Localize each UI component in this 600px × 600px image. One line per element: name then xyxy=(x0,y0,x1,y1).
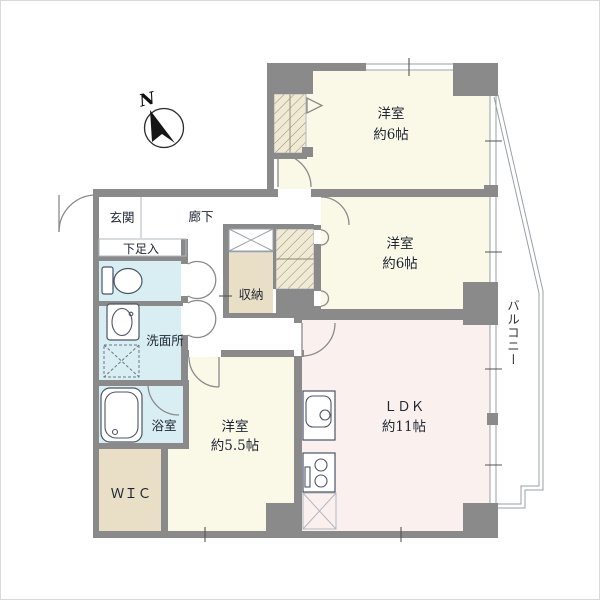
label-bedroom-top-name: 洋室 xyxy=(378,105,405,122)
vanity-sink-icon xyxy=(107,304,139,340)
label-bedroom-top-size: 約6帖 xyxy=(373,127,409,143)
compass-north-label: N xyxy=(136,88,158,112)
stove-icon xyxy=(303,453,335,492)
label-balcony: バルコニー xyxy=(504,299,522,409)
label-wic: ＷＩＣ xyxy=(111,486,152,502)
toilet-icon xyxy=(102,267,142,294)
entrance-door xyxy=(59,195,96,232)
label-ldk-size: 約11帖 xyxy=(382,419,426,435)
label-bathroom: 浴室 xyxy=(151,418,176,433)
label-storage: 収納 xyxy=(238,287,263,302)
storage-top-box-icon xyxy=(229,229,273,252)
floor-plan: N 洋室 約6帖 洋室 約6帖 ＬＤＫ 約11帖 洋室 約5.5帖 ＷＩＣ 浴室… xyxy=(0,0,600,600)
room-storage xyxy=(229,253,273,313)
label-hallway: 廊下 xyxy=(188,209,213,224)
label-bedroom-small-name: 洋室 xyxy=(222,418,249,435)
label-entrance: 玄関 xyxy=(109,210,134,225)
label-bedroom-mid-name: 洋室 xyxy=(387,235,414,252)
label-bedroom-mid-size: 約6帖 xyxy=(382,256,418,272)
label-washroom: 洗面所 xyxy=(146,333,184,348)
label-bedroom-small-size: 約5.5帖 xyxy=(211,438,259,454)
compass: N xyxy=(136,88,183,147)
toilet-door xyxy=(188,262,216,299)
washroom-door xyxy=(188,301,216,338)
label-ldk-name: ＬＤＫ xyxy=(384,399,425,415)
bathtub-icon xyxy=(101,388,142,442)
compass-needle-icon xyxy=(150,110,175,143)
kitchen-sink-icon xyxy=(303,391,335,440)
label-shoe-cabinet: 下足入 xyxy=(123,242,159,256)
